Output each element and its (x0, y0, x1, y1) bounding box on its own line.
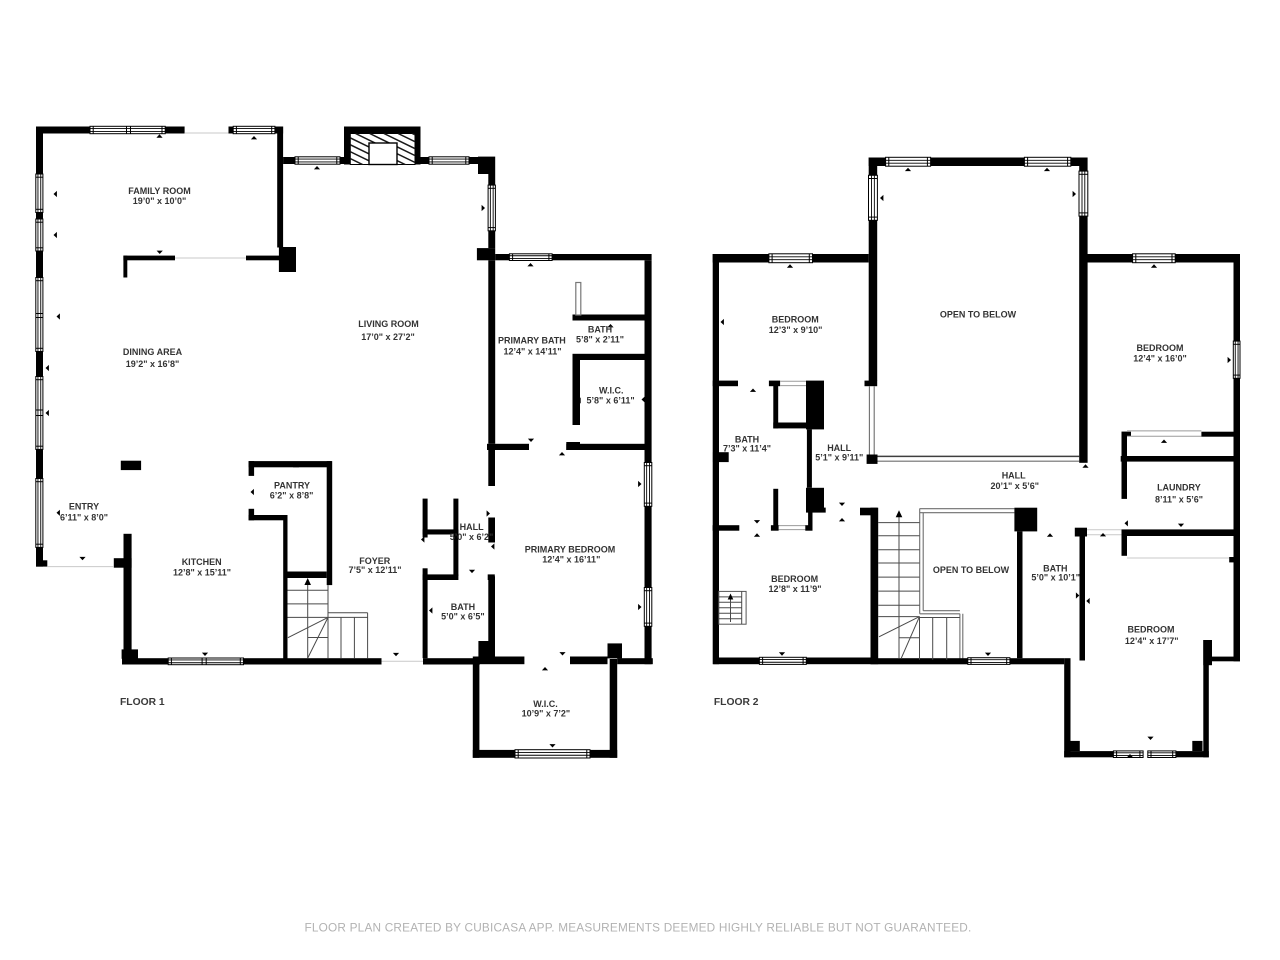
svg-text:20’1" x 5’6": 20’1" x 5’6" (991, 481, 1040, 491)
svg-text:LIVING ROOM: LIVING ROOM (358, 319, 419, 329)
svg-text:BATH: BATH (588, 324, 612, 334)
svg-text:W.I.C.: W.I.C. (599, 386, 624, 396)
svg-text:5’8" x 2’11": 5’8" x 2’11" (576, 334, 624, 344)
svg-text:12’4" x 16’0": 12’4" x 16’0" (1133, 353, 1187, 363)
svg-text:12’3" x 9’10": 12’3" x 9’10" (769, 325, 823, 335)
svg-text:12’8" x 11’9": 12’8" x 11’9" (768, 584, 821, 594)
svg-text:FLOOR PLAN CREATED BY CUBICASA: FLOOR PLAN CREATED BY CUBICASA APP. MEAS… (305, 921, 972, 935)
svg-text:8’11" x 5’6": 8’11" x 5’6" (1155, 495, 1203, 505)
svg-text:OPEN TO BELOW: OPEN TO BELOW (933, 565, 1010, 575)
svg-text:12’4" x 16’11": 12’4" x 16’11" (542, 554, 600, 564)
svg-text:5’0" x 6’2": 5’0" x 6’2" (450, 532, 494, 542)
svg-text:6’11" x 8’0": 6’11" x 8’0" (60, 513, 108, 523)
svg-text:LAUNDRY: LAUNDRY (1157, 483, 1201, 493)
svg-text:5’0" x 10’1": 5’0" x 10’1" (1031, 573, 1080, 583)
svg-text:BEDROOM: BEDROOM (1128, 625, 1175, 635)
svg-text:5’1" x 9’11": 5’1" x 9’11" (815, 453, 863, 463)
svg-text:FLOOR 1: FLOOR 1 (120, 697, 165, 708)
svg-text:12’4" x 14’11": 12’4" x 14’11" (503, 347, 561, 357)
svg-text:5’0" x 6’5": 5’0" x 6’5" (441, 611, 485, 621)
svg-text:7’3" x 11’4": 7’3" x 11’4" (723, 444, 771, 454)
svg-text:5’8" x 6’11": 5’8" x 6’11" (587, 396, 635, 406)
svg-text:FAMILY ROOM: FAMILY ROOM (128, 186, 191, 196)
svg-text:7’5" x 12’11": 7’5" x 12’11" (348, 565, 401, 575)
svg-text:17’0" x 27’2": 17’0" x 27’2" (361, 332, 415, 342)
svg-text:BEDROOM: BEDROOM (1137, 343, 1184, 353)
svg-text:DINING AREA: DINING AREA (123, 347, 183, 357)
svg-text:PANTRY: PANTRY (274, 480, 310, 490)
svg-text:BEDROOM: BEDROOM (771, 574, 818, 584)
svg-text:ENTRY: ENTRY (69, 501, 99, 511)
svg-text:PRIMARY BATH: PRIMARY BATH (498, 336, 566, 346)
svg-text:6’2" x 8’8": 6’2" x 8’8" (270, 491, 314, 501)
svg-text:BEDROOM: BEDROOM (772, 315, 819, 325)
svg-text:19’2" x 16’8": 19’2" x 16’8" (126, 359, 180, 369)
svg-text:PRIMARY BEDROOM: PRIMARY BEDROOM (525, 544, 616, 554)
svg-text:HALL: HALL (827, 443, 851, 453)
svg-text:12’8" x 15’11": 12’8" x 15’11" (173, 568, 231, 578)
svg-text:10’9" x 7’2": 10’9" x 7’2" (522, 709, 571, 719)
svg-text:FLOOR 2: FLOOR 2 (714, 697, 759, 708)
svg-text:OPEN TO BELOW: OPEN TO BELOW (940, 309, 1017, 319)
svg-text:19’0" x 10’0": 19’0" x 10’0" (133, 196, 187, 206)
svg-text:12’4" x 17’7": 12’4" x 17’7" (1125, 636, 1179, 646)
svg-text:HALL: HALL (460, 522, 484, 532)
svg-text:HALL: HALL (1002, 471, 1026, 481)
svg-text:KITCHEN: KITCHEN (182, 557, 222, 567)
